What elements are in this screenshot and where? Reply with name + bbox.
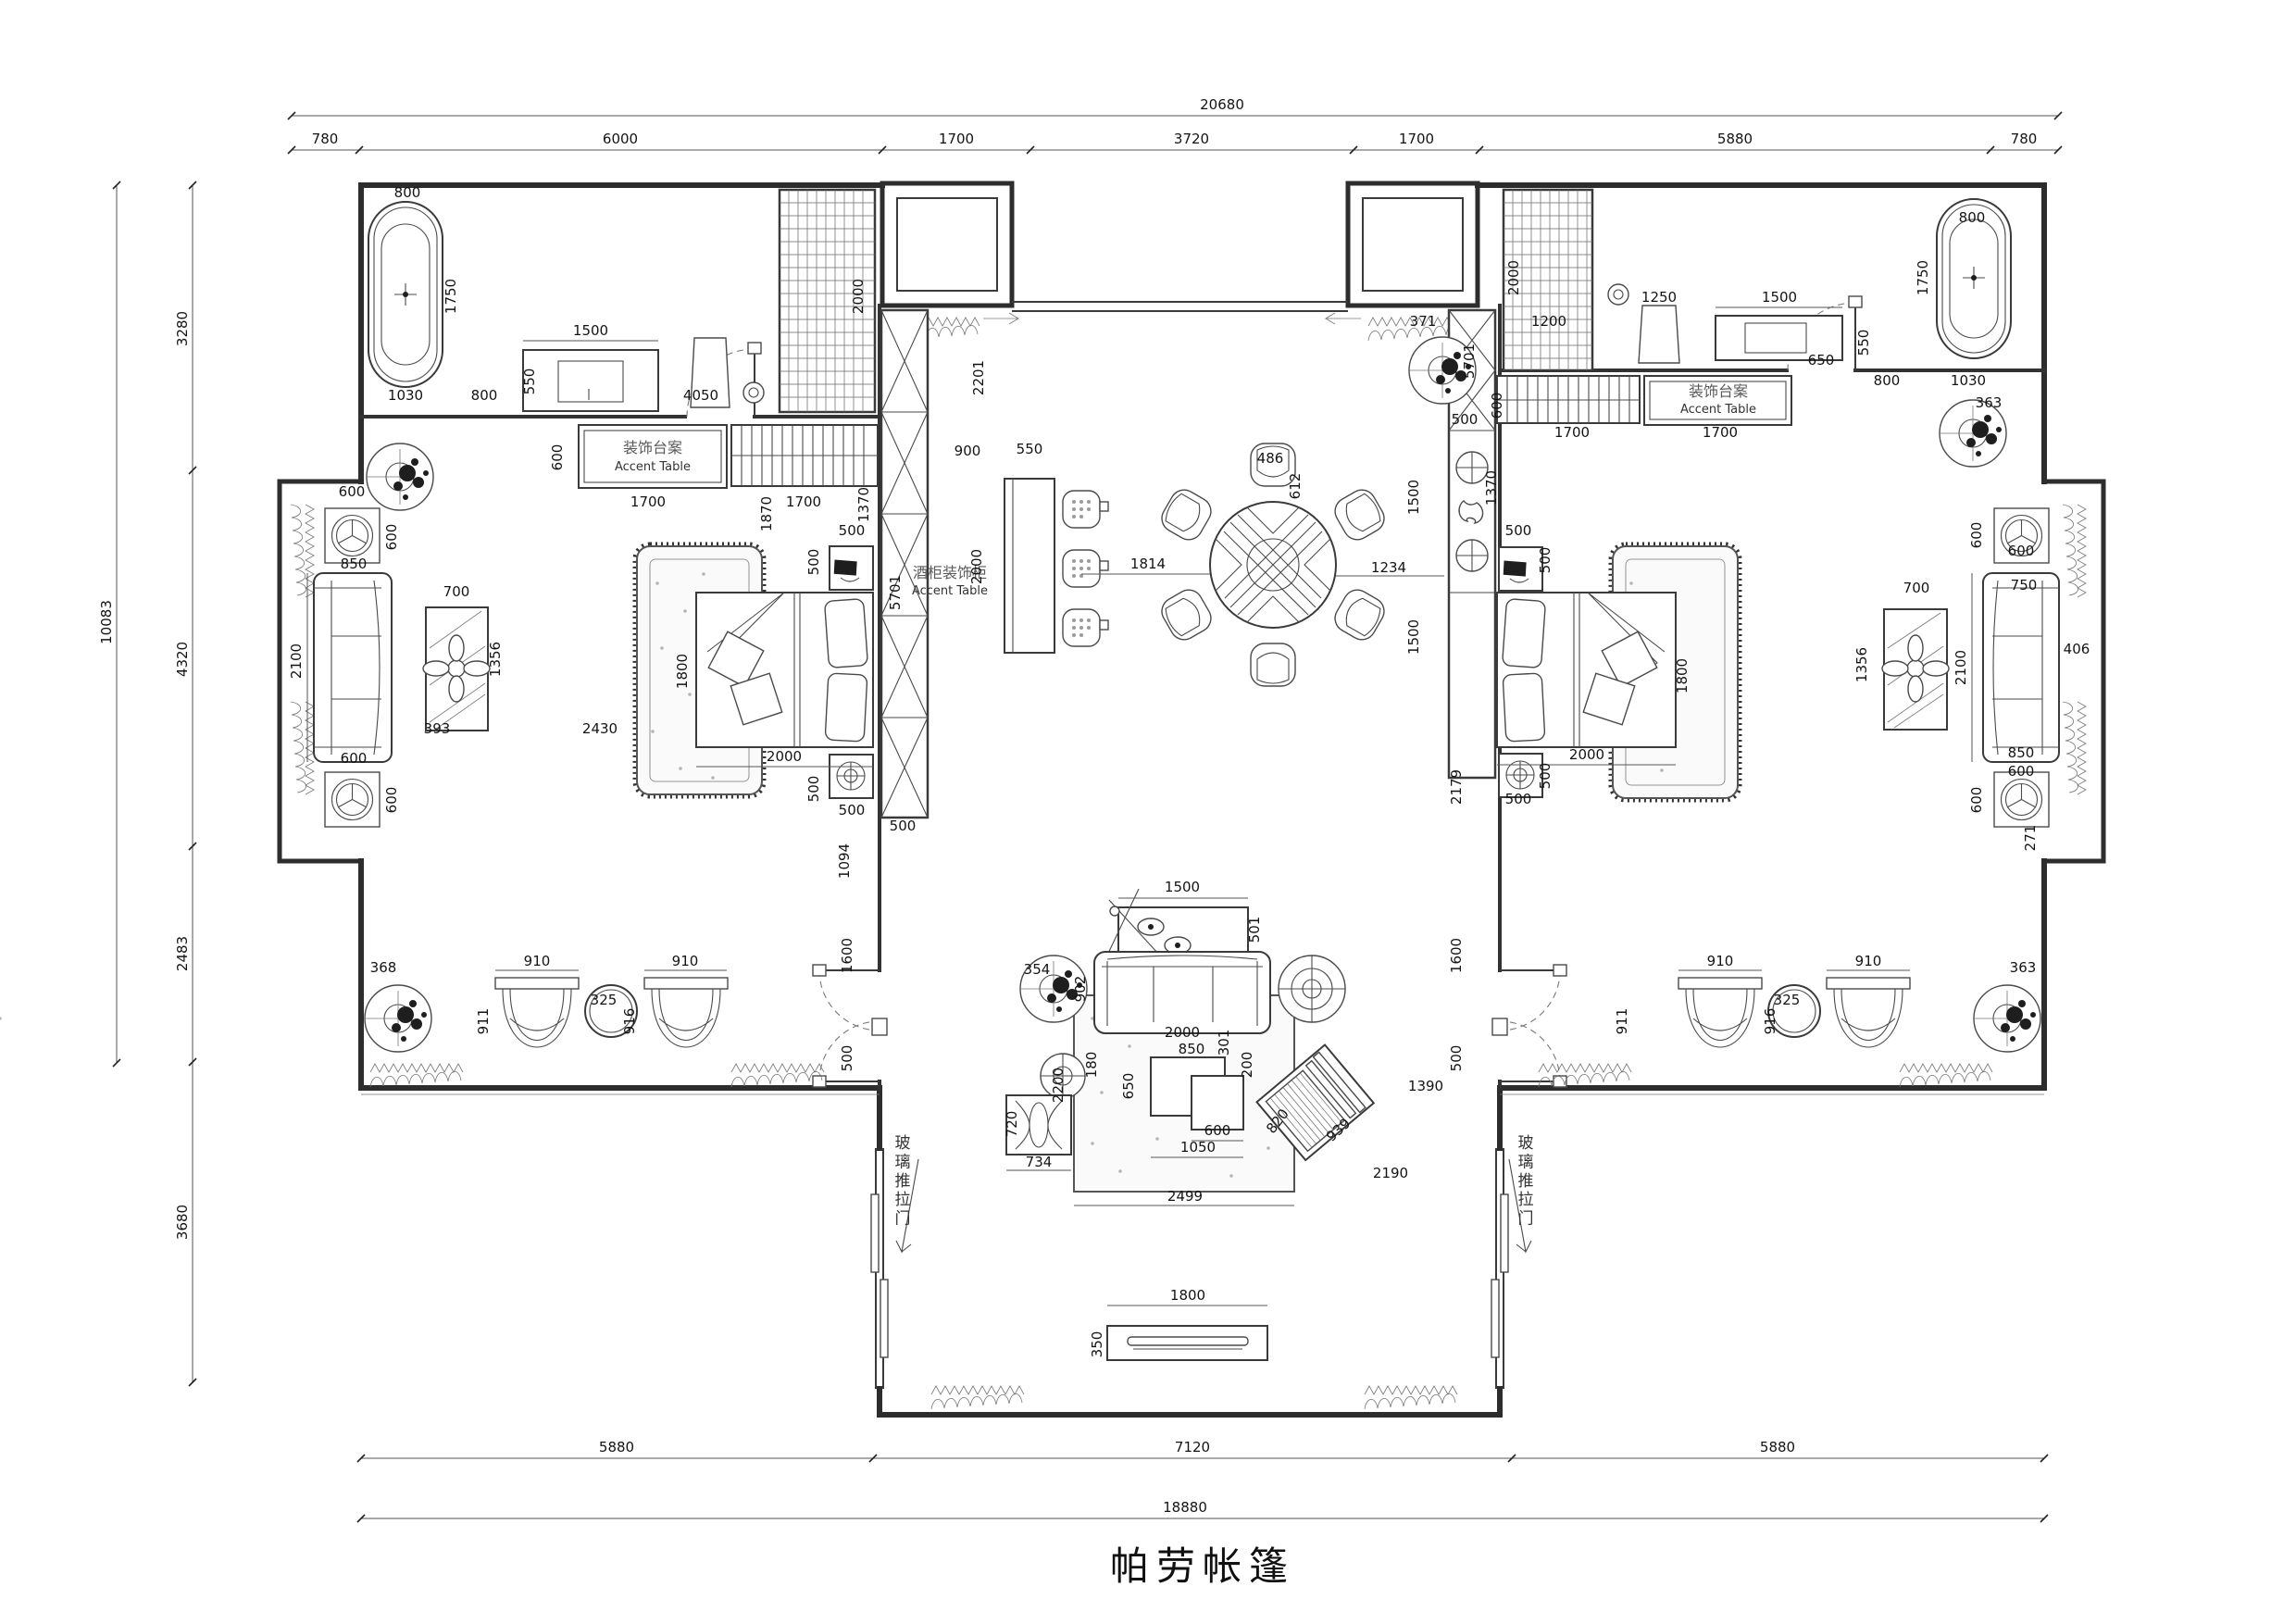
left-sofa [314,573,392,762]
dim-label: 600 [339,483,366,500]
dim-label: 1800 [1170,1287,1205,1304]
dim-label: 1234 [1371,559,1406,576]
dim-label: 650 [1808,352,1835,369]
dim-label: 780 [312,131,339,147]
dim-label: 600 [1968,522,1985,549]
left-accent-table [579,425,727,488]
floor-plan-page: 2068078060001700372017005880780100833280… [0,0,2296,1624]
dim-label: 301 [1216,1030,1232,1056]
dim-label: 500 [805,549,822,576]
dim-label: 550 [1855,330,1872,356]
glass-door-left-label: 玻璃推拉门 [895,1134,911,1229]
dim-label: 1356 [487,642,504,677]
dim-label: 1800 [674,654,691,689]
dim-label: 916 [621,1008,638,1035]
dim-label: 600 [383,524,400,551]
dim-label: 2190 [1373,1165,1408,1181]
dim-label: 4050 [683,387,718,404]
dim-label: 1200 [1531,313,1566,330]
dim-label: 910 [524,953,551,969]
dim-label: 371 [1410,313,1437,330]
dim-label: 900 [955,443,981,459]
dim-label: 910 [1855,953,1882,969]
dim-label: 780 [2011,131,2038,147]
dim-label: 200 [1239,1052,1255,1079]
dim-label: 2200 [1050,1068,1067,1103]
right-coffee-table [1882,609,1949,730]
dim-label: 910 [672,953,699,969]
dim-label: 2000 [1505,260,1522,295]
dim-label: 501 [1246,917,1263,943]
dim-label: 550 [1017,441,1043,457]
dim-label: 363 [1976,394,2003,411]
dim-label: 5880 [599,1439,634,1455]
dim-label: 500 [1505,791,1532,807]
dim-label: 2000 [968,549,985,584]
dim-label: 5701 [1461,344,1478,379]
dim-label: 5880 [1717,131,1753,147]
dim-label: 1700 [1399,131,1434,147]
dim-label: 500 [839,522,866,539]
left-bathtub [368,202,443,387]
dim-label: 500 [839,1045,855,1072]
left-bedroom [637,546,873,798]
dim-label: 600 [1489,393,1505,419]
left-slat-cabinet [731,425,878,486]
dim-label: 911 [1614,1008,1630,1035]
dim-label: 500 [839,802,866,818]
dim-label: 850 [1179,1041,1205,1057]
dim-label: 2430 [582,720,618,737]
floor-lamp-right [1279,956,1345,1022]
dim-label: 406 [2064,641,2090,657]
dim-label: 368 [370,959,397,976]
accent-table-right-label: 装饰台案 [1689,382,1748,400]
dim-label: 1500 [1405,619,1422,655]
dim-label: 911 [475,1008,492,1035]
drawing-title: 帕劳帐篷 [1110,1543,1295,1589]
dim-label: 600 [2008,763,2035,780]
dim-label: 1800 [1674,658,1691,693]
dim-label: 600 [341,750,368,767]
dim-label: 325 [1774,992,1801,1008]
dim-label: 325 [591,992,618,1008]
accent-table-left-label: 装饰台案 [623,439,682,456]
dim-label: 734 [1026,1154,1053,1170]
floor-plan-drawing: 2068078060001700372017005880780100833280… [0,0,2296,1624]
dim-label: 500 [1537,763,1554,790]
dim-label: 2000 [767,748,802,765]
dim-label: 600 [549,444,566,471]
right-bed [1497,593,1676,747]
dim-label: 1030 [388,387,423,404]
dim-label: 500 [1448,1045,1465,1072]
dim-label: 700 [1903,580,1930,596]
dim-label: 1700 [1554,424,1590,441]
dim-label: 5701 [887,575,904,610]
dim-label: 1814 [1130,556,1166,572]
dim-label: 2483 [174,936,191,971]
dim-label: 1700 [1703,424,1738,441]
dim-label: 2201 [970,360,987,395]
dim-label: 500 [1537,547,1554,574]
dim-label: 3680 [174,1205,191,1240]
dim-label: 6000 [603,131,638,147]
right-bedroom [1497,546,1738,798]
dim-label: 5880 [1760,1439,1795,1455]
dim-label: 180 [1083,1052,1100,1079]
wine-cabinet-sublabel: Accent Table [912,584,988,598]
dim-label: 1356 [1853,647,1870,682]
left-bed [696,593,873,747]
dim-label: 2000 [850,279,867,314]
dim-label: 2100 [1953,650,1969,685]
left-nightstand-top [830,546,873,590]
dim-label: 800 [394,184,421,201]
center-sofa [1094,952,1270,1033]
dim-label: 600 [2008,543,2035,559]
dim-label: 1600 [839,938,855,973]
dim-label: 1050 [1180,1139,1216,1156]
dim-label: 2100 [288,643,305,679]
dim-label: 850 [341,556,368,572]
left-terrace [365,978,728,1052]
dim-label: 1370 [855,487,872,522]
dim-label: 354 [1024,961,1051,978]
dim-label: 1030 [1951,372,1986,389]
dim-label: 800 [471,387,498,404]
dim-label: 1750 [443,279,459,314]
right-sofa [1983,573,2059,762]
bar-counter [1004,479,1108,653]
dim-label: 3720 [1174,131,1209,147]
dim-label: 2499 [1167,1188,1203,1205]
dim-label: 910 [1707,953,1734,969]
dim-label: 1250 [1641,289,1677,306]
dining-set [1157,443,1390,686]
dim-label: 1094 [836,843,853,879]
accent-table-right-sublabel: Accent Table [1680,403,1756,417]
left-nightstand-bottom [830,755,873,798]
dim-label: 3280 [174,311,191,346]
dim-label: 650 [1120,1073,1137,1100]
dim-label: 1700 [630,493,666,510]
dim-label: 600 [1204,1122,1231,1139]
dim-label: 486 [1257,450,1284,467]
dim-label: 1870 [758,496,775,531]
dim-label: 720 [1004,1111,1020,1138]
dim-label: 1500 [1405,480,1422,515]
dim-label: 500 [805,776,822,803]
dim-label: 600 [383,787,400,814]
dim-label: 700 [443,583,470,600]
curtain-symbols [291,313,2086,1409]
dim-label: 500 [1505,522,1532,539]
glass-door-right-label: 玻璃推拉门 [1518,1134,1534,1229]
dim-label: 10083 [98,600,115,644]
dim-label: 1700 [786,493,821,510]
right-terrace [1678,978,2040,1052]
dim-label: 600 [1968,787,1985,814]
dim-label: 800 [1959,209,1986,226]
dim-label: 902 [1072,976,1089,1003]
dim-label: 850 [2008,744,2035,761]
dim-label: 363 [2010,959,2037,976]
dim-label: 1750 [1915,260,1931,295]
tv-console [1107,1326,1267,1360]
dim-label: 20680 [1200,96,1244,113]
dim-label: 2000 [1569,746,1604,763]
dim-label: 750 [2011,577,2038,593]
dim-label: 350 [1089,1331,1105,1358]
accent-table-left-sublabel: Accent Table [615,460,691,474]
dim-label: 1500 [573,322,608,339]
dim-label: 1390 [1408,1078,1443,1094]
dim-label: 916 [1762,1008,1778,1035]
dim-label: 1500 [1165,879,1200,895]
left-coffee-table [423,607,490,731]
dim-label: 500 [890,818,917,834]
dim-label: 393 [424,720,451,737]
dim-label: 4320 [174,642,191,677]
left-bath-plant [367,443,433,510]
dim-label: 550 [521,369,538,395]
dim-label: 271 [2022,825,2039,852]
dim-label: 2000 [1165,1024,1200,1041]
left-vanity [523,338,764,411]
dim-label: 1370 [1483,470,1500,506]
dim-label: 1500 [1762,289,1797,306]
dim-label: 1700 [939,131,974,147]
right-nightstand-top [1499,547,1542,591]
dim-label: 7120 [1175,1439,1210,1455]
right-slat-cabinet [1497,376,1640,423]
dim-label: 1600 [1448,938,1465,973]
dim-label: 18880 [1163,1499,1207,1516]
dim-label: 800 [1874,372,1901,389]
dim-label: 612 [1287,473,1304,500]
dim-label: 500 [1452,411,1479,428]
dim-label: 2179 [1448,769,1465,805]
